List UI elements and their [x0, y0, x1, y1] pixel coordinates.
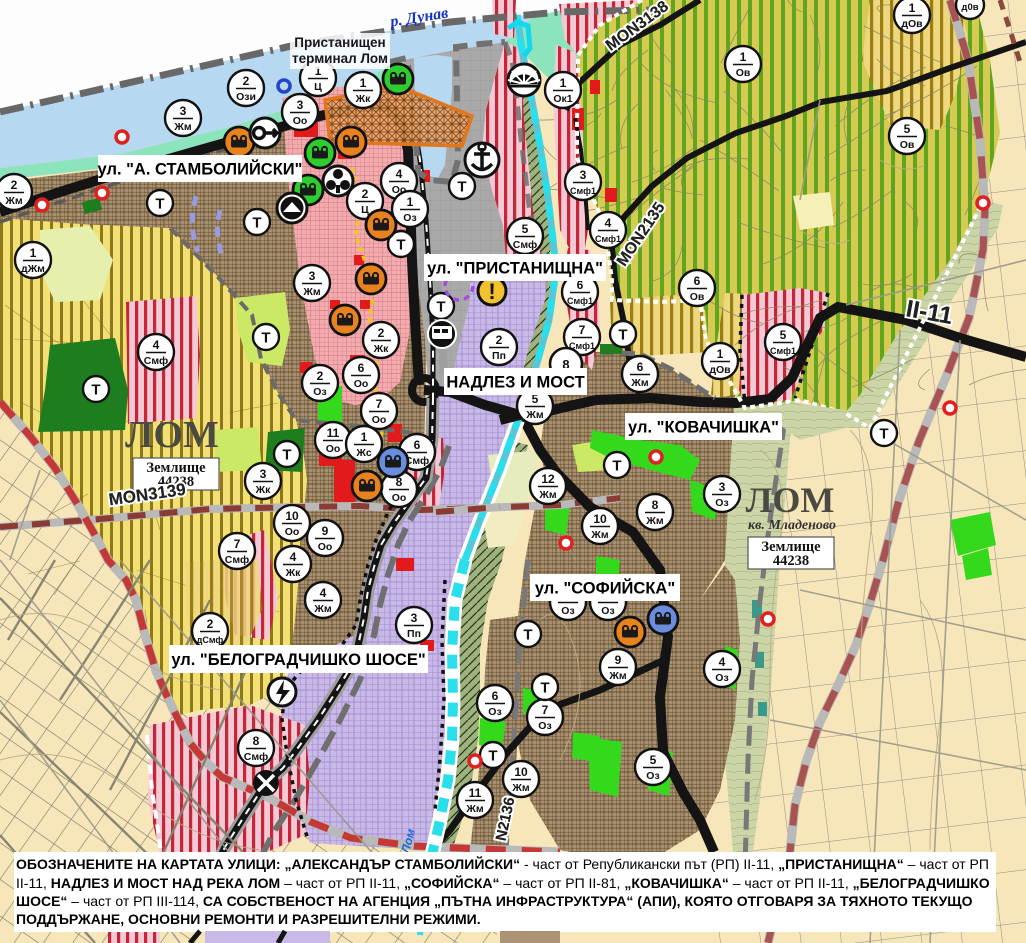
svg-text:1: 1 — [717, 347, 724, 361]
svg-text:7: 7 — [234, 537, 241, 551]
svg-text:Смф1: Смф1 — [567, 296, 593, 306]
svg-text:Оз: Оз — [538, 720, 551, 732]
svg-text:ул. "ПРИСТАНИЩНА": ул. "ПРИСТАНИЩНА" — [427, 259, 603, 277]
svg-text:Жм: Жм — [313, 603, 331, 615]
svg-text:дСмф: дСмф — [197, 635, 224, 645]
svg-text:Оо: Оо — [293, 115, 308, 127]
svg-text:Оо: Оо — [318, 541, 333, 553]
svg-text:Жс: Жс — [355, 447, 371, 459]
svg-text:Оо: Оо — [285, 526, 300, 538]
svg-text:1: 1 — [30, 246, 37, 260]
svg-text:д0в: д0в — [961, 2, 978, 13]
svg-text:ОБОЗНАЧЕНИТЕ НА КАРТАТА УЛИЦИ:: ОБОЗНАЧЕНИТЕ НА КАРТАТА УЛИЦИ: „АЛЕКСАНД… — [16, 855, 989, 872]
svg-text:ул. "А. СТАМБОЛИЙСКИ": ул. "А. СТАМБОЛИЙСКИ" — [98, 159, 303, 178]
svg-text:3: 3 — [180, 104, 187, 118]
svg-text:2: 2 — [496, 333, 503, 347]
svg-text:12: 12 — [541, 472, 555, 486]
svg-text:Т: Т — [155, 196, 164, 213]
svg-text:9: 9 — [322, 524, 329, 538]
svg-text:Т: Т — [612, 458, 621, 475]
svg-text:Т: Т — [618, 327, 627, 344]
svg-text:Жм: Жм — [608, 670, 626, 682]
svg-text:11: 11 — [327, 426, 340, 440]
svg-text:Оз: Оз — [646, 770, 659, 782]
svg-text:5: 5 — [522, 222, 529, 236]
svg-text:4: 4 — [396, 167, 403, 181]
svg-text:Т: Т — [457, 179, 466, 196]
svg-text:3: 3 — [260, 467, 267, 481]
svg-text:Ов: Ов — [690, 291, 705, 303]
svg-text:Смф: Смф — [513, 239, 537, 251]
svg-text:Смф: Смф — [144, 355, 168, 367]
svg-text:7: 7 — [542, 703, 549, 717]
svg-text:9: 9 — [615, 653, 622, 667]
svg-text:Оз: Оз — [488, 706, 501, 718]
svg-text:Оз: Оз — [601, 605, 614, 617]
svg-text:II-11, НАДЛЕЗ И МОСТ НАД РЕКА: II-11, НАДЛЕЗ И МОСТ НАД РЕКА ЛОМ – част… — [16, 874, 990, 891]
svg-text:ул. "КОВАЧИШКА": ул. "КОВАЧИШКА" — [628, 418, 779, 436]
svg-text:Жм: Жм — [173, 121, 191, 133]
svg-text:44238: 44238 — [773, 553, 809, 569]
svg-text:Смф: Смф — [225, 554, 249, 566]
svg-text:Оо: Оо — [392, 492, 407, 504]
svg-text:Т: Т — [91, 382, 100, 399]
svg-text:1: 1 — [360, 76, 367, 90]
svg-text:Ози: Ози — [236, 91, 256, 103]
svg-text:Оз: Оз — [715, 672, 728, 684]
svg-text:4: 4 — [719, 655, 726, 669]
svg-text:Т: Т — [436, 299, 445, 316]
svg-text:6: 6 — [414, 438, 421, 452]
svg-text:3: 3 — [297, 98, 304, 112]
svg-text:Смф1: Смф1 — [770, 346, 796, 356]
svg-text:дЖм: дЖм — [21, 263, 45, 275]
svg-text:Смф: Смф — [244, 751, 268, 763]
svg-text:Жк: Жк — [255, 484, 271, 496]
svg-text:2: 2 — [207, 617, 214, 631]
svg-text:Ок1: Ок1 — [553, 93, 572, 105]
svg-text:7: 7 — [376, 397, 383, 411]
svg-text:5: 5 — [780, 328, 787, 342]
svg-text:ЛОМ: ЛОМ — [746, 480, 835, 520]
svg-text:Оз: Оз — [313, 386, 326, 398]
svg-text:10: 10 — [593, 512, 607, 526]
svg-text:Т: Т — [523, 627, 532, 644]
svg-text:1: 1 — [909, 1, 916, 15]
svg-text:дОв: дОв — [901, 18, 923, 30]
svg-text:Оо: Оо — [326, 443, 341, 455]
svg-text:НАДЛЕЗ И МОСТ: НАДЛЕЗ И МОСТ — [446, 373, 584, 391]
svg-text:Оз: Оз — [561, 605, 574, 617]
svg-text:2: 2 — [243, 74, 250, 88]
svg-text:ПОДДЪРЖАНЕ, ОСНОВНИ РЕМОНТИ И: ПОДДЪРЖАНЕ, ОСНОВНИ РЕМОНТИ И РАЗРЕШИТЕЛ… — [16, 911, 481, 927]
svg-text:Оз: Оз — [403, 212, 416, 224]
svg-text:ЛОМ: ЛОМ — [125, 414, 219, 456]
svg-text:Т: Т — [396, 237, 405, 254]
svg-text:Ов: Ов — [900, 139, 915, 151]
svg-text:2: 2 — [317, 369, 324, 383]
svg-text:6: 6 — [492, 689, 499, 703]
svg-text:Жм: Жм — [645, 515, 663, 527]
svg-text:4: 4 — [290, 550, 297, 564]
svg-text:2: 2 — [11, 178, 18, 192]
svg-text:5: 5 — [650, 753, 657, 767]
svg-text:Жм: Жм — [538, 489, 556, 501]
svg-text:Оо: Оо — [372, 414, 387, 426]
svg-text:4: 4 — [320, 586, 327, 600]
svg-text:10: 10 — [514, 765, 528, 779]
svg-text:Оо: Оо — [354, 378, 369, 390]
svg-text:Жм: Жм — [465, 803, 483, 815]
svg-text:Смф1: Смф1 — [570, 186, 596, 196]
svg-text:Т: Т — [488, 748, 497, 765]
svg-text:2: 2 — [362, 187, 369, 201]
svg-text:Т: Т — [252, 215, 261, 232]
svg-text:!: ! — [488, 279, 495, 304]
svg-text:3: 3 — [580, 168, 587, 182]
svg-text:ул. "БЕЛОГРАДЧИШКО ШОСЕ": ул. "БЕЛОГРАДЧИШКО ШОСЕ" — [171, 651, 425, 669]
svg-text:Жм: Жм — [302, 286, 320, 298]
svg-text:Смф1: Смф1 — [595, 234, 621, 244]
svg-text:8: 8 — [253, 734, 260, 748]
svg-text:6: 6 — [694, 274, 701, 288]
svg-text:Жк: Жк — [285, 567, 301, 579]
svg-text:Пристанищен: Пристанищен — [294, 35, 385, 50]
svg-text:Ц: Ц — [314, 81, 322, 93]
svg-text:6: 6 — [637, 360, 644, 374]
svg-text:3: 3 — [719, 480, 726, 494]
svg-text:Жм: Жм — [511, 782, 529, 794]
svg-text:терминал Лом: терминал Лом — [292, 51, 388, 66]
svg-text:4: 4 — [605, 216, 612, 230]
svg-text:4: 4 — [153, 338, 160, 352]
svg-text:3: 3 — [411, 611, 418, 625]
svg-text:3: 3 — [309, 269, 316, 283]
svg-text:Жк: Жк — [355, 93, 371, 105]
svg-text:1: 1 — [560, 76, 567, 90]
svg-text:2: 2 — [378, 326, 385, 340]
svg-text:1: 1 — [361, 430, 368, 444]
svg-text:кв. Младеново: кв. Младеново — [748, 518, 836, 533]
svg-text:1: 1 — [407, 195, 414, 209]
svg-text:5: 5 — [904, 122, 911, 136]
svg-text:Т: Т — [879, 426, 888, 443]
svg-text:Т: Т — [282, 447, 291, 464]
svg-text:Пп: Пп — [492, 350, 506, 362]
svg-text:Оз: Оз — [715, 497, 728, 509]
svg-text:Пп: Пп — [407, 628, 421, 640]
svg-text:7: 7 — [579, 323, 586, 337]
svg-text:6: 6 — [358, 361, 365, 375]
svg-text:Т: Т — [540, 680, 549, 697]
svg-text:Жк: Жк — [373, 343, 389, 355]
svg-text:Жм: Жм — [630, 377, 648, 389]
svg-text:10: 10 — [285, 509, 299, 523]
svg-text:8: 8 — [652, 498, 659, 512]
svg-text:Жм: Жм — [4, 195, 22, 207]
svg-text:Жм: Жм — [525, 409, 543, 421]
svg-text:ШОСЕ“ – част от РП III-114, СА: ШОСЕ“ – част от РП III-114, СА СОБСТВЕНО… — [16, 893, 973, 909]
svg-text:Т: Т — [261, 330, 270, 347]
svg-text:дОв: дОв — [709, 364, 731, 376]
svg-text:Ц: Ц — [361, 204, 369, 216]
svg-text:1: 1 — [740, 50, 747, 64]
svg-text:Жм: Жм — [590, 529, 608, 541]
svg-text:11: 11 — [469, 786, 482, 800]
svg-text:Ов: Ов — [736, 67, 751, 79]
svg-text:ул. "СОФИЙСКА": ул. "СОФИЙСКА" — [535, 578, 675, 597]
